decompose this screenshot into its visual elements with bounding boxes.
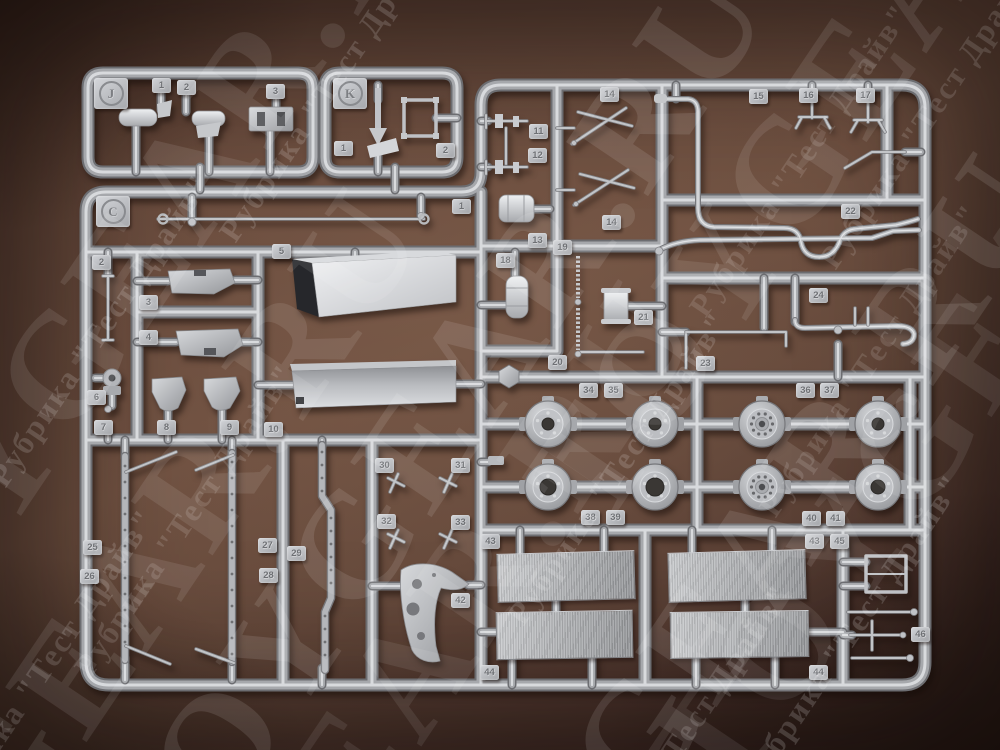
- part-number-tag: 15: [749, 89, 768, 104]
- part-number-tag: 40: [802, 511, 821, 526]
- part-number-tag: 18: [496, 253, 515, 268]
- part-number-tag: 44: [809, 665, 828, 680]
- sprue-letter-chip: J: [94, 78, 128, 109]
- part-number-tag: 41: [826, 511, 845, 526]
- part-number-tag: 29: [287, 546, 306, 561]
- part-number-tag: 6: [87, 390, 106, 405]
- part-number-tag: 1: [334, 141, 353, 156]
- part-number-tag: 16: [799, 88, 818, 103]
- part-number-tag: 37: [820, 383, 839, 398]
- part-number-tag: 31: [451, 458, 470, 473]
- part-number-tag: 3: [139, 295, 158, 310]
- part-number-tag: 2: [177, 80, 196, 95]
- part-number-tag: 23: [696, 356, 715, 371]
- part-number-tag: 3: [266, 84, 285, 99]
- part-number-tag: 24: [809, 288, 828, 303]
- model-kit-sprue-photo: JKC1231212345678910111213141415161718192…: [0, 0, 1000, 750]
- part-number-tag: 14: [600, 87, 619, 102]
- part-number-tag: 11: [529, 124, 548, 139]
- part-number-chips-layer: JKC1231212345678910111213141415161718192…: [0, 0, 1000, 750]
- sprue-letter-chip: K: [333, 78, 367, 109]
- part-number-tag: 46: [911, 627, 930, 642]
- part-number-tag: 20: [548, 355, 567, 370]
- part-number-tag: 8: [157, 420, 176, 435]
- part-number-tag: 12: [528, 148, 547, 163]
- part-number-tag: 21: [634, 310, 653, 325]
- part-number-tag: 30: [375, 458, 394, 473]
- part-number-tag: 43: [481, 534, 500, 549]
- part-number-tag: 43: [805, 534, 824, 549]
- sprue-letter-label: C: [101, 199, 126, 224]
- part-number-tag: 33: [451, 515, 470, 530]
- part-number-tag: 26: [80, 569, 99, 584]
- part-number-tag: 22: [841, 204, 860, 219]
- sprue-letter-label: K: [338, 81, 363, 106]
- part-number-tag: 28: [259, 568, 278, 583]
- part-number-tag: 2: [92, 255, 111, 270]
- part-number-tag: 36: [796, 383, 815, 398]
- part-number-tag: 42: [451, 593, 470, 608]
- part-number-tag: 7: [94, 420, 113, 435]
- part-number-tag: 45: [830, 534, 849, 549]
- part-number-tag: 38: [581, 510, 600, 525]
- sprue-letter-label: J: [99, 81, 124, 106]
- part-number-tag: 9: [220, 420, 239, 435]
- part-number-tag: 35: [604, 383, 623, 398]
- part-number-tag: 2: [436, 143, 455, 158]
- part-number-tag: 34: [579, 383, 598, 398]
- sprue-letter-chip: C: [96, 196, 130, 227]
- part-number-tag: 17: [856, 88, 875, 103]
- part-number-tag: 44: [480, 665, 499, 680]
- part-number-tag: 5: [272, 244, 291, 259]
- part-number-tag: 14: [602, 215, 621, 230]
- part-number-tag: 25: [83, 540, 102, 555]
- part-number-tag: 27: [258, 538, 277, 553]
- part-number-tag: 1: [452, 199, 471, 214]
- part-number-tag: 13: [528, 233, 547, 248]
- part-number-tag: 4: [139, 330, 158, 345]
- part-number-tag: 32: [377, 514, 396, 529]
- part-number-tag: 19: [553, 240, 572, 255]
- part-number-tag: 39: [606, 510, 625, 525]
- part-number-tag: 10: [264, 422, 283, 437]
- part-number-tag: 1: [152, 78, 171, 93]
